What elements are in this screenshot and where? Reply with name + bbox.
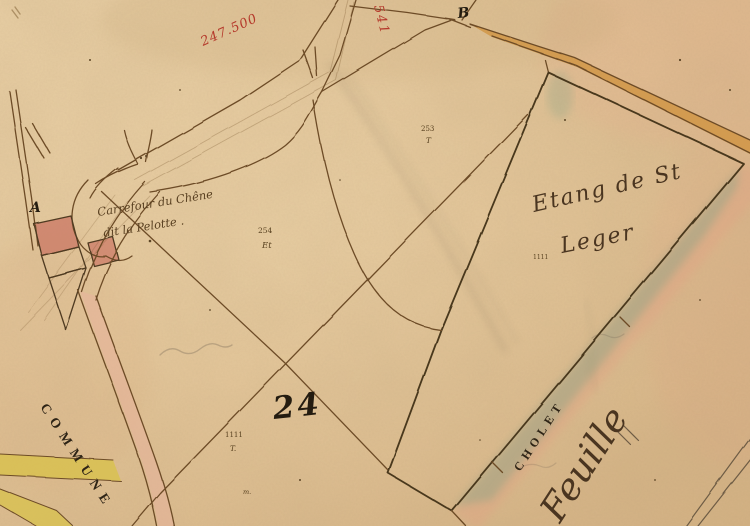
parcel-1111-number: 1111 bbox=[225, 431, 243, 439]
map-canvas: 247.500 541 B A Carrefour du Chêne dit l… bbox=[0, 0, 750, 526]
junction-letter-b: B bbox=[456, 5, 471, 22]
marker-m: m. bbox=[243, 488, 251, 496]
parcel-254-number: 254 bbox=[258, 226, 273, 235]
junction-letter-a: A bbox=[28, 200, 41, 216]
paper-grain bbox=[0, 0, 750, 526]
parcel-1111-code: T. bbox=[230, 444, 236, 453]
parcel-253-number: 253 bbox=[421, 125, 434, 133]
section-number-24: 24 bbox=[270, 386, 324, 427]
parcel-254-code: Et bbox=[261, 241, 272, 251]
paper-background bbox=[0, 0, 750, 526]
small-1111-number: 1111 bbox=[533, 254, 548, 261]
cadastral-map-sheet: 247.500 541 B A Carrefour du Chêne dit l… bbox=[0, 0, 750, 526]
